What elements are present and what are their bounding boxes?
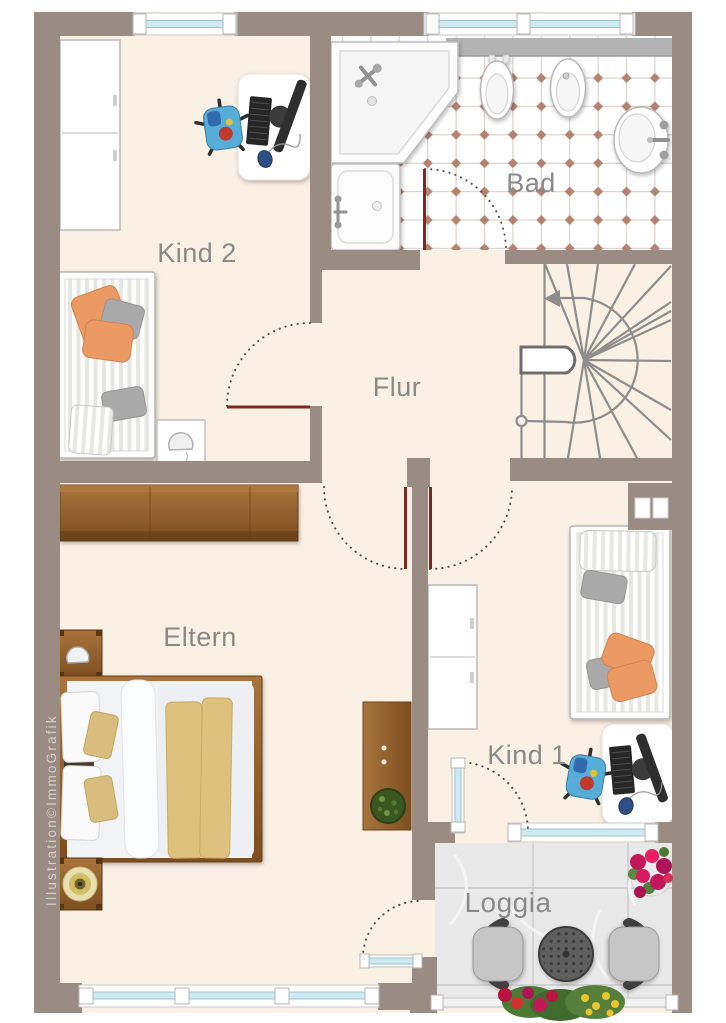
- floor-plan-drawing: Kind 2 Bad Flur Eltern Kind 1 Loggia Ill…: [0, 0, 726, 1023]
- room-label-flur: Flur: [373, 372, 422, 402]
- eltern-double-bed: [58, 676, 262, 862]
- bidet: [551, 59, 586, 117]
- room-label-eltern: Eltern: [163, 622, 237, 652]
- bidet-faucet-icon: [563, 73, 569, 79]
- loggia-chair-right: [609, 919, 659, 989]
- wall-segment: [310, 406, 322, 463]
- keyboard-icon: [609, 745, 635, 795]
- wall-niche: [653, 498, 668, 518]
- window-kind2-top: [133, 13, 237, 35]
- window-eltern-bottom: [79, 985, 379, 1007]
- room-label-kind2: Kind 2: [157, 238, 237, 268]
- shower: [331, 164, 400, 250]
- room-label-loggia: Loggia: [464, 887, 551, 918]
- wall-segment: [310, 270, 322, 323]
- blanket-yellow: [200, 698, 233, 858]
- wall-segment: [412, 487, 428, 822]
- eltern-nightstand-lamp: [58, 630, 102, 678]
- wall-segment: [234, 12, 429, 36]
- kind2-bed: [58, 272, 155, 458]
- wall-segment: [43, 983, 82, 1013]
- wall-segment: [322, 250, 420, 270]
- wall-niche: [635, 498, 650, 518]
- bathroom-shelf: [446, 38, 672, 56]
- wall-segment: [510, 458, 692, 481]
- washbasin: [614, 107, 669, 173]
- wall-segment: [310, 36, 331, 270]
- gold-plate-icon: [63, 867, 97, 901]
- kind2-nightstand: [157, 420, 205, 465]
- window-bad-top: [424, 13, 635, 35]
- blanket-yellow: [166, 702, 205, 859]
- watermark-text: Illustration©ImmoGrafik: [44, 714, 59, 906]
- keyboard-icon: [246, 96, 272, 146]
- wall-segment: [412, 822, 455, 843]
- pillow-white: [580, 530, 657, 571]
- wall-segment: [505, 250, 672, 264]
- floor-plan: Kind 2 Bad Flur Eltern Kind 1 Loggia Ill…: [0, 0, 726, 1023]
- loggia-chair-left: [473, 919, 523, 989]
- bathtub-drain-icon: [368, 97, 377, 106]
- pillow-orange: [82, 319, 135, 363]
- kind1-bed: [570, 526, 670, 719]
- shower-drain-icon: [373, 202, 382, 211]
- potted-plant-icon: [371, 789, 405, 823]
- kind2-wardrobe: [60, 40, 120, 230]
- wall-segment: [672, 12, 692, 1013]
- kind1-wardrobe: [428, 585, 477, 729]
- stair-start-marker: [517, 416, 527, 426]
- window-kind1-loggia: [508, 823, 658, 842]
- flower-box-icon: [498, 985, 625, 1021]
- wall-segment: [34, 461, 322, 483]
- eltern-nightstand-plate: [58, 858, 102, 910]
- folded-sheet: [121, 680, 160, 859]
- eltern-wardrobe: [60, 485, 298, 541]
- wall-segment: [407, 458, 430, 487]
- room-label-bad: Bad: [506, 168, 556, 198]
- lamp-icon: [67, 647, 89, 663]
- lamp-icon: [169, 433, 193, 450]
- kind2-desk: [238, 73, 310, 180]
- pillow-white: [68, 405, 113, 456]
- loggia-table: [539, 927, 593, 981]
- stair-newel: [521, 347, 575, 373]
- kind1-chest: [363, 702, 411, 830]
- room-label-kind1: Kind 1: [487, 740, 567, 770]
- wall-segment: [378, 983, 437, 1010]
- wall-segment: [655, 822, 692, 843]
